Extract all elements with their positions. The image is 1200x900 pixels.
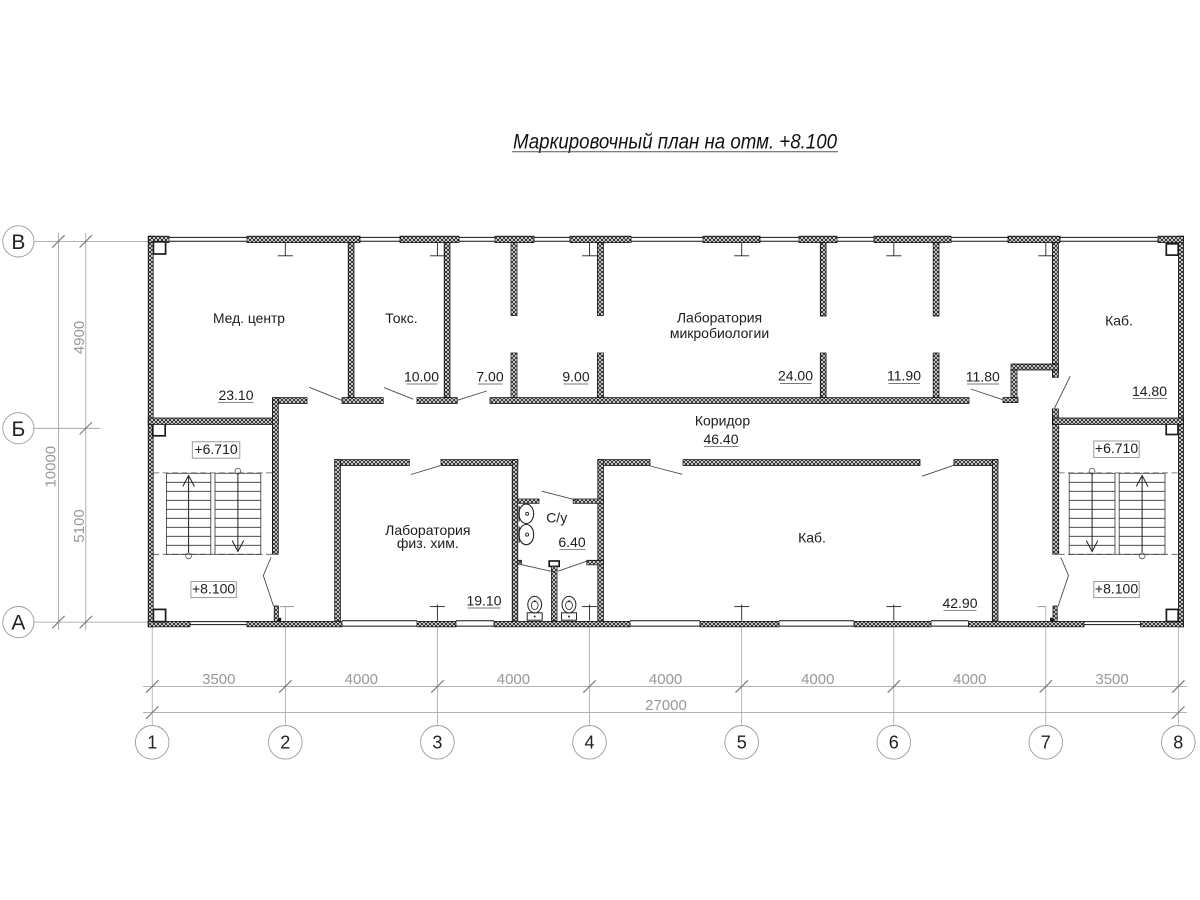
svg-text:3: 3: [432, 733, 442, 753]
svg-text:10000: 10000: [43, 446, 60, 488]
svg-text:19.10: 19.10: [466, 593, 501, 609]
svg-text:3500: 3500: [1095, 671, 1128, 688]
svg-text:14.80: 14.80: [1132, 383, 1167, 399]
svg-text:Коридор: Коридор: [695, 413, 751, 429]
svg-text:Токс.: Токс.: [385, 310, 417, 326]
svg-text:С/у: С/у: [546, 510, 567, 526]
svg-text:+8.100: +8.100: [1095, 580, 1138, 596]
svg-text:8: 8: [1173, 733, 1183, 753]
svg-text:27000: 27000: [645, 697, 687, 714]
svg-text:24.00: 24.00: [778, 368, 813, 384]
svg-text:5: 5: [737, 733, 747, 753]
svg-text:3500: 3500: [202, 671, 235, 688]
svg-text:Каб.: Каб.: [798, 530, 826, 546]
svg-text:4: 4: [584, 733, 594, 753]
svg-text:4900: 4900: [71, 321, 88, 354]
svg-text:42.90: 42.90: [942, 595, 977, 611]
svg-text:11.80: 11.80: [966, 369, 1000, 385]
svg-text:+6.710: +6.710: [194, 441, 237, 457]
svg-text:9.00: 9.00: [562, 369, 589, 385]
svg-text:4000: 4000: [497, 671, 530, 688]
svg-text:4000: 4000: [953, 671, 986, 688]
svg-text:В: В: [11, 231, 25, 254]
svg-text:Мед. центр: Мед. центр: [213, 310, 285, 326]
svg-text:Лаборатория: Лаборатория: [677, 310, 762, 326]
svg-text:2: 2: [280, 733, 290, 753]
svg-text:1: 1: [147, 733, 157, 753]
svg-text:4000: 4000: [345, 671, 378, 688]
svg-text:микробиологии: микробиологии: [670, 325, 769, 341]
svg-text:5100: 5100: [71, 509, 88, 542]
svg-text:4000: 4000: [801, 671, 834, 688]
svg-text:46.40: 46.40: [703, 431, 738, 447]
svg-text:11.90: 11.90: [887, 368, 921, 384]
svg-text:А: А: [11, 612, 25, 635]
svg-text:6: 6: [889, 733, 899, 753]
svg-text:7.00: 7.00: [476, 369, 503, 385]
svg-text:6.40: 6.40: [558, 534, 585, 550]
svg-text:10.00: 10.00: [404, 369, 439, 385]
svg-text:физ. хим.: физ. хим.: [397, 535, 459, 551]
svg-text:+6.710: +6.710: [1095, 440, 1138, 456]
svg-text:23.10: 23.10: [218, 387, 253, 403]
svg-text:+8.100: +8.100: [192, 580, 235, 596]
svg-text:7: 7: [1041, 733, 1051, 753]
svg-text:4000: 4000: [649, 671, 682, 688]
svg-text:Каб.: Каб.: [1105, 313, 1133, 329]
svg-text:Маркировочный план на отм. +8.: Маркировочный план на отм. +8.100: [513, 130, 837, 154]
svg-text:Б: Б: [12, 418, 26, 441]
